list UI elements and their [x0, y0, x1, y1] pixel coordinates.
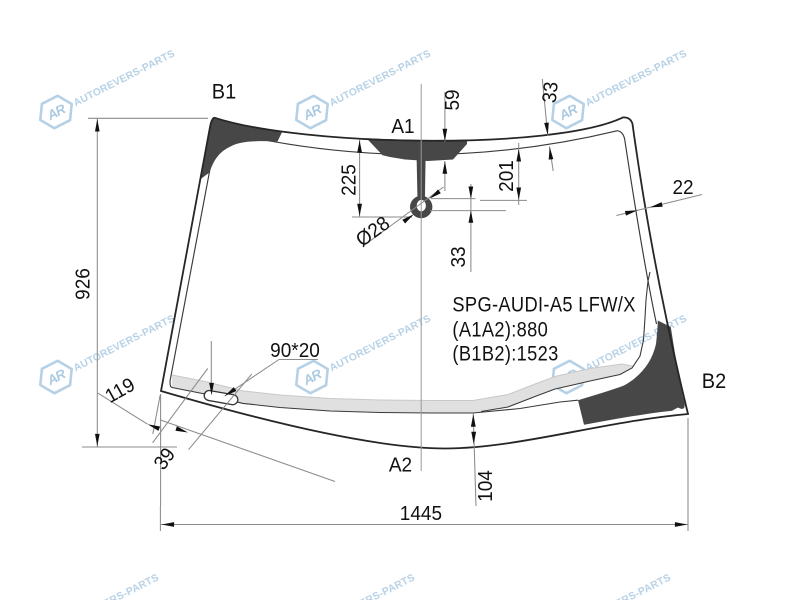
svg-text:1445: 1445: [400, 502, 442, 525]
svg-text:(B1B2):1523: (B1B2):1523: [452, 342, 558, 366]
svg-text:201: 201: [495, 160, 518, 192]
svg-text:B1: B1: [212, 80, 236, 104]
svg-text:SPG-AUDI-A5 LFW/X: SPG-AUDI-A5 LFW/X: [452, 293, 635, 317]
svg-text:90*20: 90*20: [270, 339, 320, 362]
svg-text:A2: A2: [389, 454, 412, 477]
svg-text:22: 22: [672, 176, 693, 199]
svg-text:(A1A2):880: (A1A2):880: [452, 318, 548, 342]
svg-text:225: 225: [338, 164, 361, 196]
svg-text:33: 33: [538, 81, 563, 104]
svg-text:926: 926: [72, 268, 95, 300]
svg-text:33: 33: [447, 246, 470, 267]
svg-text:A1: A1: [391, 115, 414, 138]
svg-text:B2: B2: [702, 370, 726, 394]
svg-text:59: 59: [441, 89, 464, 110]
svg-text:104: 104: [474, 470, 497, 502]
